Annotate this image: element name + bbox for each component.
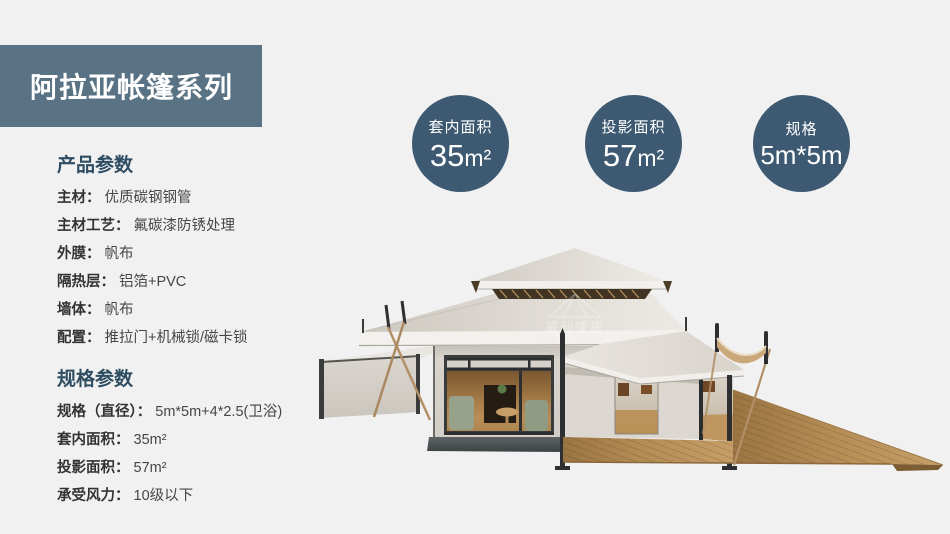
roof-truss — [492, 289, 652, 299]
watermark-cn: 威利篷房 — [545, 320, 605, 335]
annex-opening — [615, 376, 658, 434]
product-sheet: { "page": { "background": "#f1f1f2" }, "… — [0, 0, 950, 534]
tent-illustration: 威利篷房 WELL TENT — [0, 0, 950, 534]
stone-base — [427, 437, 566, 452]
watermark-en: WELL TENT — [542, 336, 609, 345]
main-window — [444, 355, 554, 435]
top-roof — [471, 248, 672, 299]
